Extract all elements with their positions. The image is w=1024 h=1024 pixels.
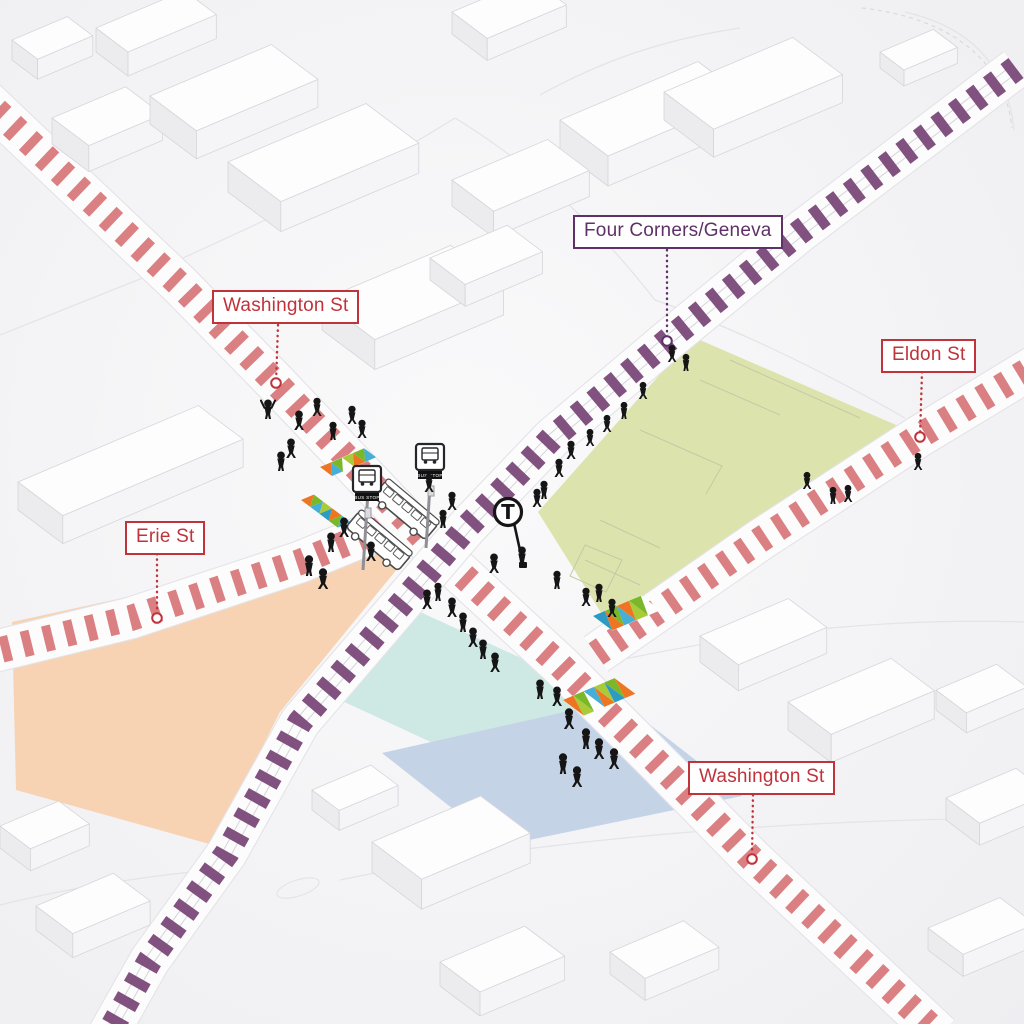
label-washington-st-south: Washington St bbox=[688, 761, 835, 795]
svg-text:BUS STOP: BUS STOP bbox=[354, 495, 380, 500]
map-stage: BUS STOPBUS STOPT Four Corners/Geneva Wa… bbox=[0, 0, 1024, 1024]
label-anchor-dot bbox=[915, 432, 925, 442]
label-anchor-dot bbox=[662, 336, 672, 346]
label-eldon-st: Eldon St bbox=[881, 339, 976, 373]
label-anchor-dot bbox=[271, 378, 281, 388]
label-washington-st-north: Washington St bbox=[212, 290, 359, 324]
map-canvas: BUS STOPBUS STOPT bbox=[0, 0, 1024, 1024]
label-anchor-dot bbox=[747, 854, 757, 864]
label-four-corners-geneva: Four Corners/Geneva bbox=[573, 215, 783, 249]
label-erie-st: Erie St bbox=[125, 521, 205, 555]
svg-text:T: T bbox=[501, 500, 515, 524]
label-anchor-dot bbox=[152, 613, 162, 623]
